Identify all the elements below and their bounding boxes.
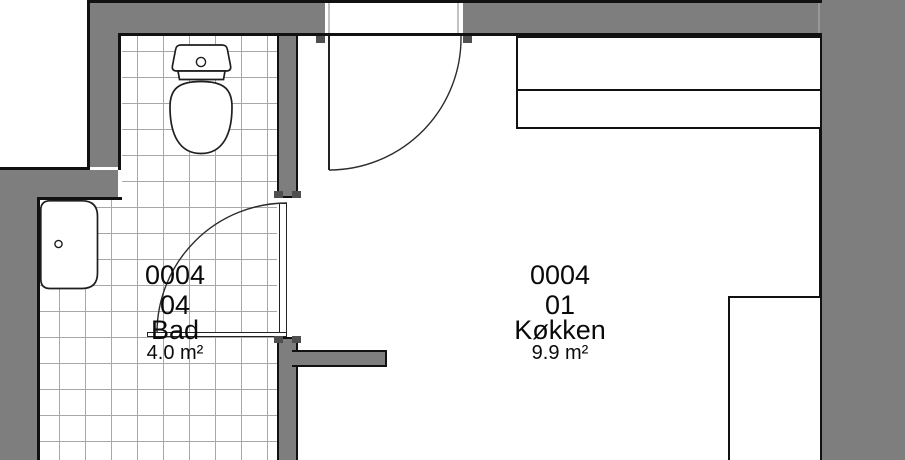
wall-right bbox=[822, 0, 905, 460]
kitchen-cabinet bbox=[728, 296, 822, 460]
room-label-kitchen: 0004 01 Køkken 9.9 m² bbox=[480, 0, 640, 460]
room-id: 0004 bbox=[95, 262, 255, 289]
wall-jog-top-line bbox=[0, 167, 90, 170]
wall-left-outer-line bbox=[87, 0, 90, 170]
floor-plan-canvas: 0004 04 Bad 4.0 m² 0004 01 Køkken 9.9 m² bbox=[0, 0, 905, 460]
wall-bathroom-left-lower bbox=[0, 197, 37, 460]
kitchen-door-swing-arc bbox=[329, 36, 461, 170]
wall-bathroom-right-upper bbox=[277, 33, 298, 198]
bathroom-door-leaf-closed bbox=[279, 203, 287, 333]
door-stop bbox=[292, 336, 301, 343]
wall-left-lower-inner-line bbox=[37, 197, 40, 460]
kitchen-door-jamb-right bbox=[457, 3, 459, 33]
kitchen-door-leaf bbox=[328, 36, 330, 170]
wall-joint-line bbox=[818, 3, 820, 33]
door-stop bbox=[274, 191, 283, 198]
kitchen-door-jamb-left bbox=[328, 3, 330, 33]
door-stop bbox=[292, 191, 301, 198]
door-stop bbox=[316, 36, 325, 43]
door-stop bbox=[274, 336, 283, 343]
door-stop bbox=[463, 36, 472, 43]
room-name: Bad bbox=[95, 317, 255, 344]
wall-stub-horizontal bbox=[292, 350, 387, 367]
room-id: 0004 bbox=[480, 262, 640, 289]
room-label-bathroom: 0004 04 Bad 4.0 m² bbox=[95, 0, 255, 460]
room-area: 9.9 m² bbox=[480, 343, 640, 363]
room-name: Køkken bbox=[480, 317, 640, 344]
room-area: 4.0 m² bbox=[95, 343, 255, 363]
